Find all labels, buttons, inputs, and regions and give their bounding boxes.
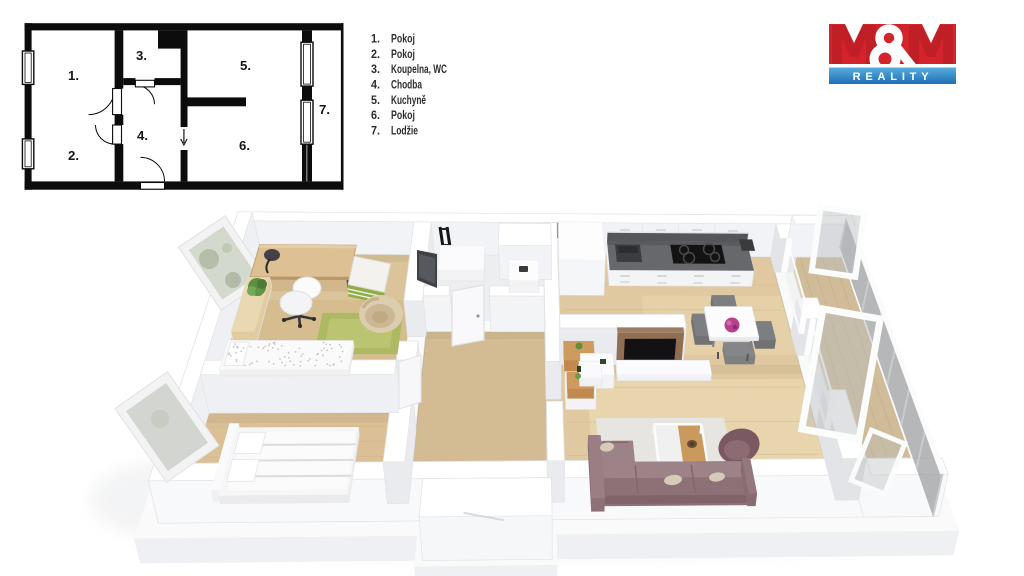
svg-text:7.: 7. (319, 102, 330, 117)
svg-text:5.: 5. (240, 58, 251, 73)
svg-text:Lodžie: Lodžie (391, 126, 418, 138)
svg-text:Pokoj: Pokoj (391, 34, 415, 46)
svg-text:Pokoj: Pokoj (391, 110, 415, 122)
svg-text:1.: 1. (371, 34, 380, 46)
svg-text:3.: 3. (136, 48, 147, 63)
svg-text:6.: 6. (371, 110, 380, 122)
svg-text:Koupelna, WC: Koupelna, WC (391, 64, 447, 76)
svg-text:5.: 5. (371, 95, 380, 107)
svg-text:6.: 6. (239, 138, 250, 153)
svg-text:4.: 4. (371, 80, 380, 92)
svg-text:REALITY: REALITY (853, 71, 934, 83)
svg-text:1.: 1. (68, 68, 79, 83)
svg-text:7.: 7. (371, 126, 380, 138)
svg-text:2.: 2. (68, 148, 79, 163)
svg-text:4.: 4. (137, 128, 148, 143)
svg-text:2.: 2. (371, 49, 380, 61)
svg-text:Chodba: Chodba (391, 80, 422, 92)
svg-text:Kuchyně: Kuchyně (391, 95, 426, 107)
svg-text:Pokoj: Pokoj (391, 49, 415, 61)
svg-text:3.: 3. (371, 64, 380, 76)
